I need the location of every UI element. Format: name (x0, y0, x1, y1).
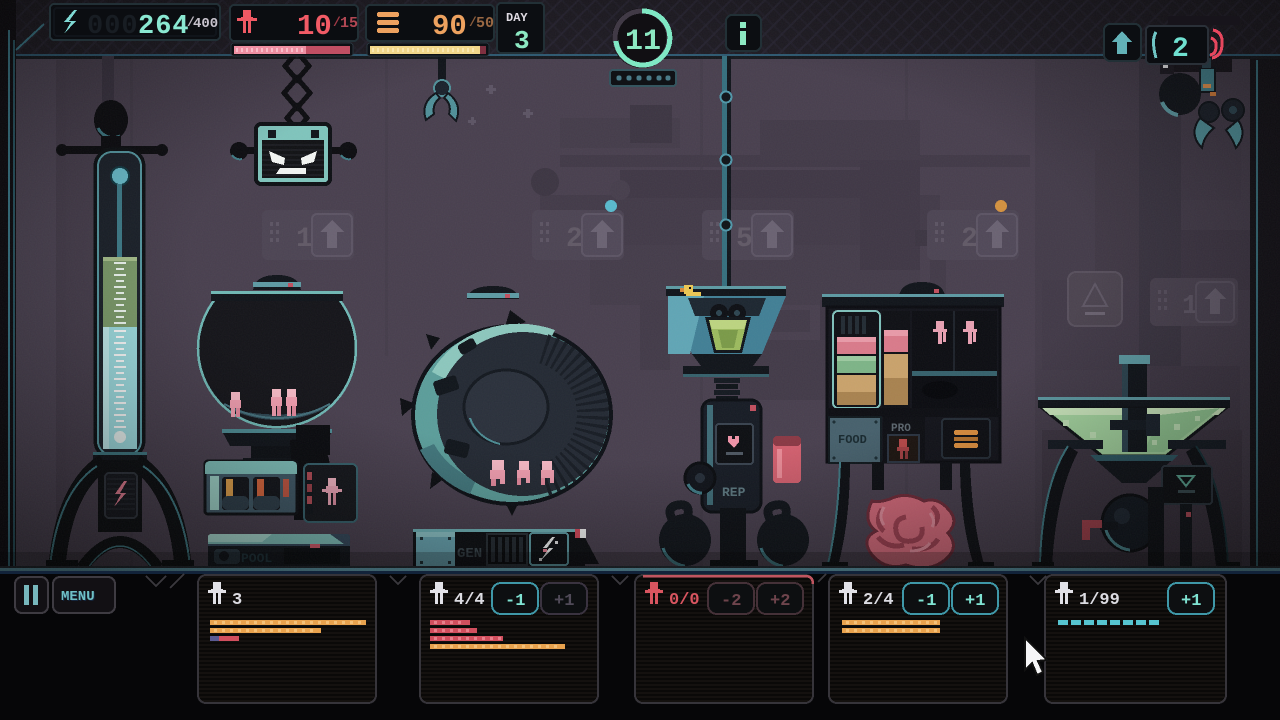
svg-text:000: 000 (87, 12, 139, 42)
svg-text:264: 264 (138, 12, 190, 42)
svg-text:+2: +2 (770, 592, 790, 611)
svg-text:15: 15 (340, 15, 358, 32)
svg-text:0/0: 0/0 (669, 591, 700, 610)
svg-text:+1: +1 (554, 592, 574, 611)
svg-text:4/4: 4/4 (454, 591, 485, 610)
svg-text:2/4: 2/4 (863, 591, 894, 610)
svg-text:-1: -1 (916, 592, 936, 611)
svg-text:400: 400 (193, 16, 218, 32)
svg-text:2: 2 (1172, 34, 1189, 65)
svg-text:-2: -2 (721, 592, 741, 611)
svg-text:+1: +1 (1181, 592, 1201, 611)
svg-text:3: 3 (232, 591, 242, 610)
svg-text:+1: +1 (965, 592, 985, 611)
svg-text:10: 10 (297, 10, 332, 43)
svg-text:3: 3 (514, 26, 530, 56)
svg-text:50: 50 (476, 15, 494, 32)
svg-text:90: 90 (432, 10, 467, 43)
svg-text:-1: -1 (505, 592, 525, 611)
svg-text:DAY: DAY (506, 11, 528, 25)
svg-text:MENU: MENU (61, 589, 95, 605)
svg-text:1/99: 1/99 (1079, 591, 1120, 610)
svg-text:11: 11 (625, 25, 661, 59)
